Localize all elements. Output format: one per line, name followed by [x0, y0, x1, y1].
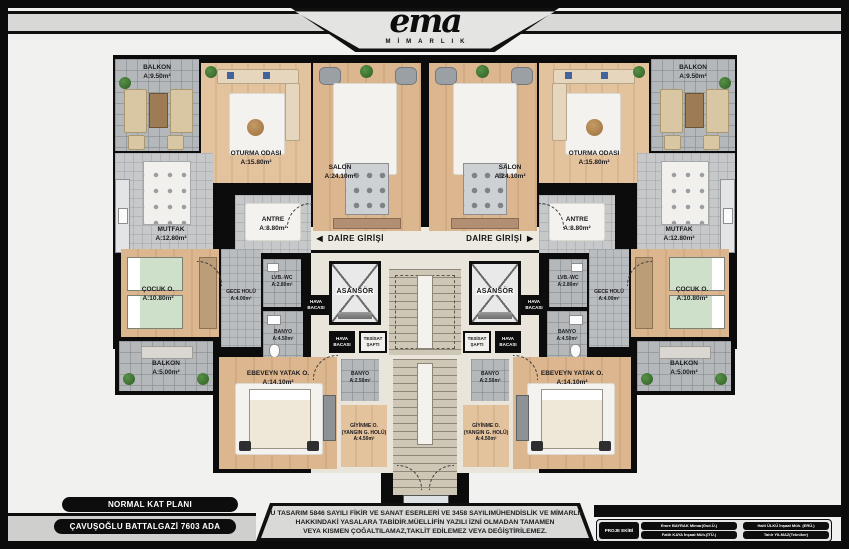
rug — [333, 83, 397, 175]
room-night-hall-right: GECE HOLÜA:4.00m² — [589, 249, 629, 347]
pillow — [565, 72, 572, 79]
entry-text: DAİRE GİRİŞİ — [466, 234, 522, 243]
plant-icon — [205, 66, 217, 78]
room-area: A:2.50m² — [471, 378, 509, 385]
elevator-counterweight — [478, 312, 512, 319]
sink — [571, 263, 583, 272]
air-shaft-label: HAVABACASI — [521, 295, 547, 315]
room-area: A:4.00m² — [221, 296, 261, 303]
nightstand — [599, 441, 611, 451]
team-member-cell: Tahir YILMAZ(Tekniker) — [743, 531, 829, 539]
balcony-chair — [128, 135, 145, 150]
elevator-right: ASANSÖR — [469, 261, 521, 325]
shaft-line: ŞAFTI — [367, 342, 380, 348]
dresser — [323, 395, 336, 441]
nightstand — [531, 441, 543, 451]
sofa — [285, 83, 300, 141]
room-name: BALKON — [119, 359, 213, 368]
room-area: A:5.00m² — [119, 368, 213, 377]
room-kitchen-left: MUTFAKA:12.80m² — [115, 153, 213, 253]
room-label: BALKONA:5.00m² — [637, 359, 731, 377]
room-name: BALKON — [115, 63, 199, 72]
room-area: A:12.80m² — [637, 234, 721, 243]
dresser — [516, 395, 529, 441]
sink — [267, 263, 279, 272]
bed — [541, 389, 603, 449]
room-area: A:2.80m² — [549, 282, 587, 289]
room-area: A:9.50m² — [115, 72, 199, 81]
room-name: OTURMA ODASI — [539, 149, 649, 158]
room-name: ÇOCUK O. — [657, 285, 727, 294]
room-label: BALKONA:9.50m² — [115, 63, 199, 81]
toilet — [269, 344, 280, 358]
kitchen-table — [661, 161, 709, 225]
balcony-table — [685, 93, 704, 128]
console — [333, 218, 401, 229]
room-label: GİYİNME O.(YANGIN G. HOLÜ)A:4.50m² — [463, 423, 509, 443]
room-area: A:4.50m² — [463, 436, 509, 443]
room-bath-left: BANYOA:4.50m² — [263, 311, 303, 363]
coffee-table — [586, 119, 603, 136]
room-area: A:15.80m² — [201, 158, 311, 167]
room-label: BANYOA:4.50m² — [547, 329, 587, 342]
entry-text: DAİRE GİRİŞİ — [328, 234, 384, 243]
team-title-cell: PROJE EKİBİ — [599, 522, 639, 539]
utility-shaft: TESİSATŞAFTI — [463, 331, 491, 353]
copyright-text: BU TASARIM 5846 SAYILI FİKİR VE SANAT ES… — [256, 509, 594, 537]
arrow-left-icon: ◄ — [314, 233, 325, 245]
room-name: GECE HOLÜ — [589, 289, 629, 296]
room-salon-right: SALONA:24.10m² — [429, 63, 537, 231]
room-label: BANYOA:2.50m² — [471, 371, 509, 384]
balcony-chair — [703, 135, 720, 150]
pillow — [263, 72, 270, 79]
kitchen-table — [143, 161, 191, 225]
air-shaft: HAVABACASI — [495, 331, 521, 353]
elevator-counterweight — [338, 312, 372, 319]
project-team-table: PROJE EKİBİ Emre BAYRAK Mimar(Gsd.Ü.) Fa… — [596, 519, 832, 542]
room-name: ÇOCUK O. — [123, 285, 193, 294]
elevator-left: ASANSÖR — [329, 261, 381, 325]
room-balcony-low-left: BALKONA:5.00m² — [119, 341, 213, 391]
room-area: A:10.80m² — [657, 294, 727, 303]
stair-landing-strip — [417, 363, 433, 445]
plant-icon — [476, 65, 489, 78]
floor-plan: ◄ DAİRE GİRİŞİ DAİRE GİRİŞİ ► BALKONA:9.… — [113, 55, 737, 503]
copyright-line: BU TASARIM 5846 SAYILI FİKİR VE SANAT ES… — [256, 509, 594, 518]
room-label: ÇOCUK O.A:10.80m² — [123, 285, 193, 303]
project-block-badge: ÇAVUŞOĞLU BATTALGAZİ 7603 ADA — [54, 519, 236, 534]
room-area: A:9.50m² — [651, 72, 735, 81]
room-name: SALON — [485, 163, 535, 172]
sofa — [552, 83, 567, 141]
nightstand — [239, 441, 251, 451]
room-area: A:4.50m² — [263, 336, 303, 343]
room-area: A:12.80m² — [129, 234, 213, 243]
bench — [141, 346, 193, 359]
brand-logo-text: ema — [291, 4, 559, 37]
balcony-chair — [167, 135, 184, 150]
sink — [118, 208, 128, 224]
room-name: BALKON — [651, 63, 735, 72]
room-lav-wc-right: LVB.-WCA:2.80m² — [549, 259, 587, 307]
room-label: BANYOA:2.50m² — [341, 371, 379, 384]
air-shaft-label: HAVABACASI — [329, 331, 355, 353]
room-label: OTURMA ODASIA:15.80m² — [539, 149, 649, 167]
lounger — [170, 89, 193, 133]
lounger — [706, 89, 729, 133]
room-area: A:4.00m² — [589, 296, 629, 303]
shaft-line: ŞAFTI — [471, 342, 484, 348]
room-name: MUTFAK — [129, 225, 213, 234]
air-shaft: HAVABACASI — [329, 331, 355, 353]
bench — [659, 346, 711, 359]
sink — [569, 315, 583, 325]
entry-label-right: DAİRE GİRİŞİ ► — [466, 233, 536, 245]
pillow — [601, 72, 608, 79]
room-balcony-top-left: BALKONA:9.50m² — [115, 59, 199, 151]
room-dressing-right: GİYİNME O.(YANGIN G. HOLÜ)A:4.50m² — [463, 405, 509, 467]
plant-icon — [633, 66, 645, 78]
room-label: BANYOA:4.50m² — [263, 329, 303, 342]
room-lav-wc-left: LVB.-WCA:2.80m² — [263, 259, 301, 307]
room-area: A:4.50m² — [547, 336, 587, 343]
balcony-table — [149, 93, 168, 128]
room-salon-left: SALONA:24.10m² — [313, 63, 421, 231]
team-member-cell: Emre BAYRAK Mimar(Gsd.Ü.) — [641, 522, 737, 530]
room-label: LVB.-WCA:2.80m² — [263, 275, 301, 288]
air-shaft-label: HAVABACASI — [495, 331, 521, 353]
room-area: A:4.50m² — [341, 436, 387, 443]
footer-divider-line — [8, 513, 256, 516]
toilet — [570, 344, 581, 358]
room-name: SALON — [315, 163, 365, 172]
room-label: BALKONA:9.50m² — [651, 63, 735, 81]
air-shaft: HAVABACASI — [303, 295, 329, 315]
room-bath-small-right: BANYOA:2.50m² — [471, 359, 509, 401]
kitchen-counter — [720, 179, 735, 253]
team-member-cell: Halil ÜLKÜ İnşaat Müh. (ERÜ.) — [743, 522, 829, 530]
room-area: A:2.50m² — [341, 378, 379, 385]
plant-icon — [360, 65, 373, 78]
room-night-hall-left: GECE HOLÜA:4.00m² — [221, 249, 261, 347]
room-area: A:5.00m² — [637, 368, 731, 377]
staircase-upper — [389, 269, 461, 355]
room-label: OTURMA ODASIA:15.80m² — [201, 149, 311, 167]
room-bath-small-left: BANYOA:2.50m² — [341, 359, 379, 401]
room-area: A:2.80m² — [263, 282, 301, 289]
room-area: A:15.80m² — [539, 158, 649, 167]
stair-landing-strip — [417, 275, 433, 349]
rug — [453, 83, 517, 175]
room-label: BALKONA:5.00m² — [119, 359, 213, 377]
floor-plan-page: ema MİMARLIK ◄ DAİRE GİRİŞİ DAİRE GİRİŞİ… — [0, 0, 849, 549]
copyright-box: BU TASARIM 5846 SAYILI FİKİR VE SANAT ES… — [256, 503, 594, 541]
lounger — [660, 89, 683, 133]
balcony-chair — [664, 135, 681, 150]
brand-logo-subtitle: MİMARLIK — [291, 39, 559, 45]
shaft-line: BACASI — [525, 305, 542, 311]
brand-logo: ema MİMARLIK — [291, 8, 559, 52]
room-label: LVB.-WCA:2.80m² — [549, 275, 587, 288]
shaft-line: BACASI — [307, 305, 324, 311]
room-dressing-left: GİYİNME O.(YANGIN G. HOLÜ)A:4.50m² — [341, 405, 387, 467]
room-label: GECE HOLÜA:4.00m² — [589, 289, 629, 302]
room-name: OTURMA ODASI — [201, 149, 311, 158]
elevator-label: ASANSÖR — [336, 288, 374, 295]
sink — [723, 208, 733, 224]
utility-shaft-label: TESİSATŞAFTI — [361, 333, 385, 351]
copyright-line: VEYA KISMEN ÇOĞALTILAMAZ,TAKLİT EDİLEMEZ… — [256, 527, 594, 536]
bed — [249, 389, 311, 449]
shaft-line: BACASI — [499, 342, 516, 348]
armchair — [395, 67, 417, 85]
room-living-left: OTURMA ODASIA:15.80m² — [201, 63, 311, 183]
room-balcony-low-right: BALKONA:5.00m² — [637, 341, 731, 391]
copyright-line: HAKKINDAKİ YASALARA TABİDİR.MÜELLİFİN YA… — [256, 518, 594, 527]
plan-title-badge: NORMAL KAT PLANI — [62, 497, 238, 512]
room-area: A:24.10m² — [485, 172, 535, 181]
lounger — [124, 89, 147, 133]
console — [451, 218, 519, 229]
sink — [267, 315, 281, 325]
coffee-table — [247, 119, 264, 136]
room-label: GECE HOLÜA:4.00m² — [221, 289, 261, 302]
room-label: GİYİNME O.(YANGIN G. HOLÜ)A:4.50m² — [341, 423, 387, 443]
room-living-right: OTURMA ODASIA:15.80m² — [539, 63, 649, 183]
building-entry-step — [403, 495, 449, 504]
room-kitchen-right: MUTFAKA:12.80m² — [637, 153, 735, 253]
air-shaft: HAVABACASI — [521, 295, 547, 315]
kitchen-counter — [115, 179, 130, 253]
team-member-cell: Fatih KAYA İnşaat Müh.(İTÜ.) — [641, 531, 737, 539]
room-balcony-top-right: BALKONA:9.50m² — [651, 59, 735, 151]
arrow-right-icon: ► — [525, 233, 536, 245]
room-name: MUTFAK — [637, 225, 721, 234]
room-name: GECE HOLÜ — [221, 289, 261, 296]
room-label: SALONA:24.10m² — [315, 163, 365, 181]
elevator-label: ASANSÖR — [476, 288, 514, 295]
nightstand — [307, 441, 319, 451]
room-bath-right: BANYOA:4.50m² — [547, 311, 587, 363]
room-area: A:10.80m² — [123, 294, 193, 303]
room-label: MUTFAKA:12.80m² — [637, 225, 721, 243]
room-label: ÇOCUK O.A:10.80m² — [657, 285, 727, 303]
air-shaft-label: HAVABACASI — [303, 295, 329, 315]
room-area: A:24.10m² — [315, 172, 365, 181]
armchair — [435, 67, 457, 85]
utility-shaft: TESİSATŞAFTI — [359, 331, 387, 353]
entry-label-left: ◄ DAİRE GİRİŞİ — [314, 233, 384, 245]
pillow — [227, 72, 234, 79]
room-name: BALKON — [637, 359, 731, 368]
shaft-line: BACASI — [333, 342, 350, 348]
utility-shaft-label: TESİSATŞAFTI — [465, 333, 489, 351]
footer-right-bar — [594, 505, 841, 517]
room-label: MUTFAKA:12.80m² — [129, 225, 213, 243]
room-label: SALONA:24.10m² — [485, 163, 535, 181]
